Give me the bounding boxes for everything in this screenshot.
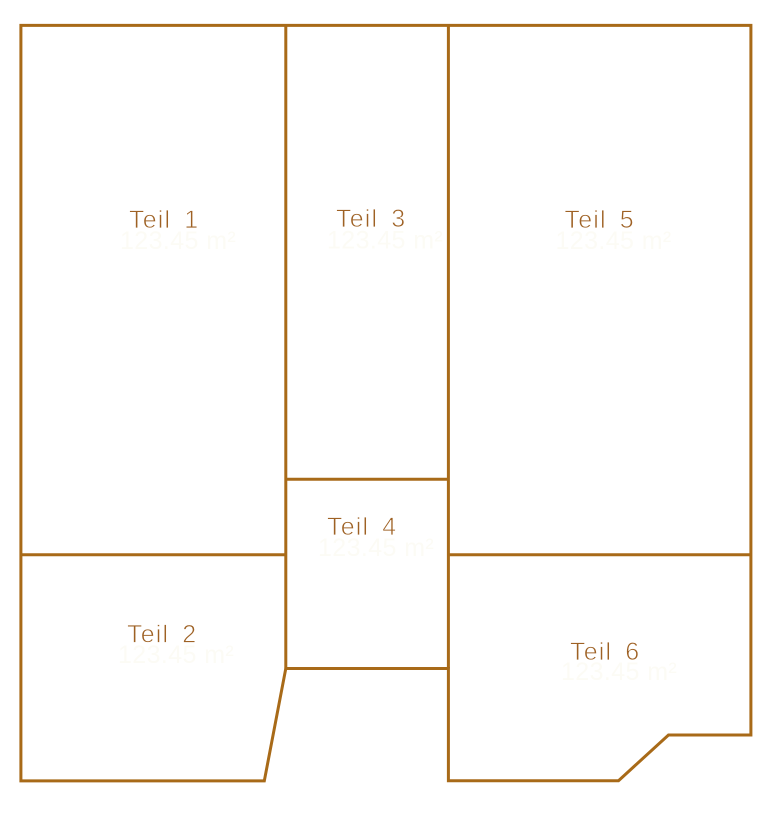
svg-text:123.45 m²: 123.45 m² [120,227,236,255]
svg-text:123.45 m²: 123.45 m² [327,227,443,255]
svg-text:123.45 m²: 123.45 m² [318,534,434,562]
svg-text:123.45 m²: 123.45 m² [556,227,672,255]
svg-text:123.45 m²: 123.45 m² [561,658,677,686]
svg-text:123.45 m²: 123.45 m² [118,641,234,669]
